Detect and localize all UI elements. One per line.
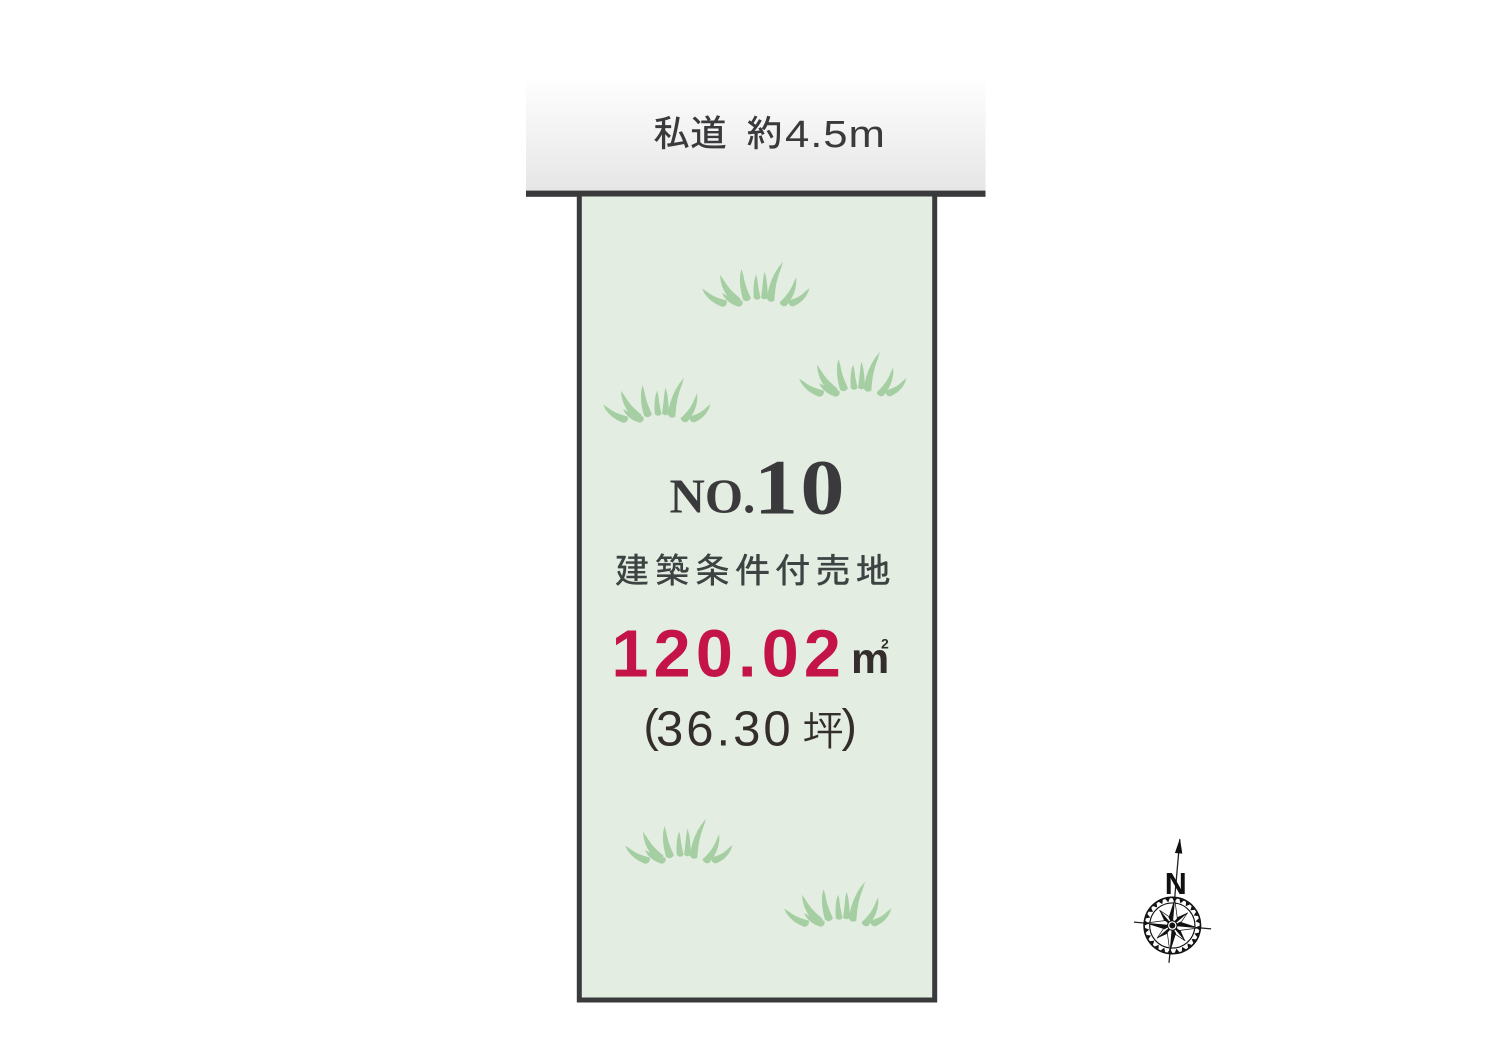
svg-text:10: 10 (754, 445, 847, 531)
svg-text:2: 2 (881, 636, 889, 652)
svg-text:): ) (842, 700, 857, 752)
svg-text:4.5m: 4.5m (785, 113, 886, 156)
svg-text:36.30: 36.30 (656, 703, 794, 757)
svg-text:NO.: NO. (670, 469, 756, 524)
svg-text:120.02: 120.02 (612, 618, 847, 692)
svg-text:N: N (1165, 867, 1187, 901)
